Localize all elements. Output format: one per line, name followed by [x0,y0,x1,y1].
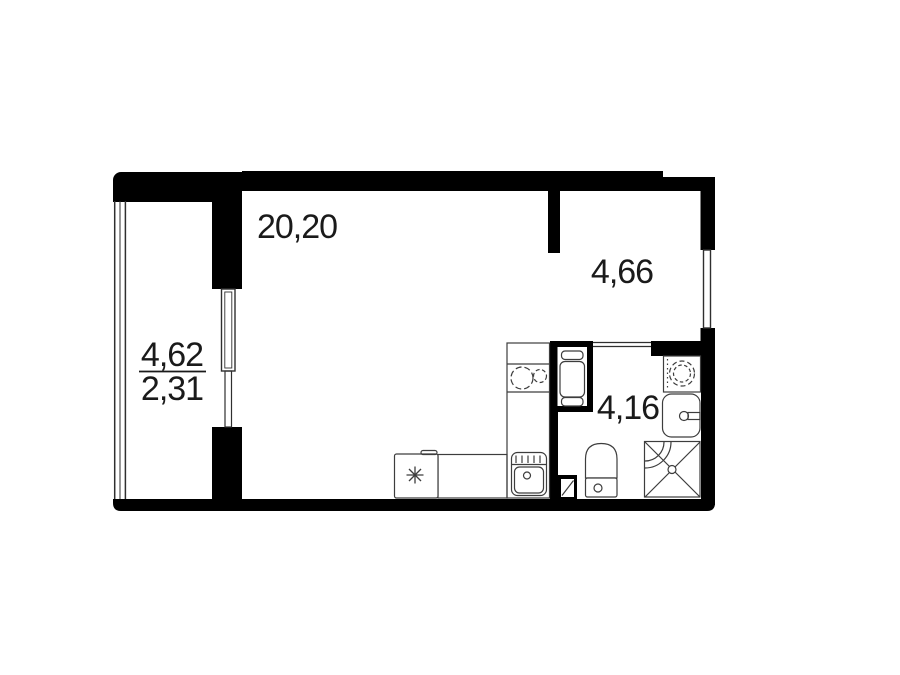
hallway-window [704,250,711,328]
balcony-door-window [222,289,236,427]
toilet [586,444,618,498]
wall-balcony-partition-bottom [212,427,242,499]
wall-right-mid [701,328,716,358]
shower-drain-icon [668,466,676,474]
balcony-glazing [115,201,126,499]
wall-bottom [113,499,715,511]
hallway-area-label: 4,66 [591,253,653,291]
floor-plan: 20,20 4,66 4,16 4,62 2,31 [0,0,900,675]
bathroom-area-label: 4,16 [597,389,659,427]
wall-top-main [242,171,663,191]
bathroom-sink [663,394,701,437]
wall-top-balcony [113,172,213,202]
wall-balcony-partition-top [212,172,242,289]
wall-bathroom-top [651,341,701,356]
wall-right-upper [701,177,716,250]
snowflake-icon [407,467,424,484]
fridge-handle [421,451,437,455]
wall-hallway-divider [548,191,560,253]
balcony-area-label: 4,62 [141,336,203,374]
floor-plan-drawing: 20,20 4,66 4,16 4,62 2,31 [0,0,900,675]
bathroom-door-opening [593,343,651,347]
balcony-reduced-area-label: 2,31 [141,370,203,408]
wall-right-lower [701,358,715,505]
living-kitchen-area-label: 20,20 [257,208,337,246]
shower [645,442,701,498]
washing-machine [664,356,701,392]
fridge [395,451,439,499]
kitchen-counter-horizontal [438,455,507,499]
